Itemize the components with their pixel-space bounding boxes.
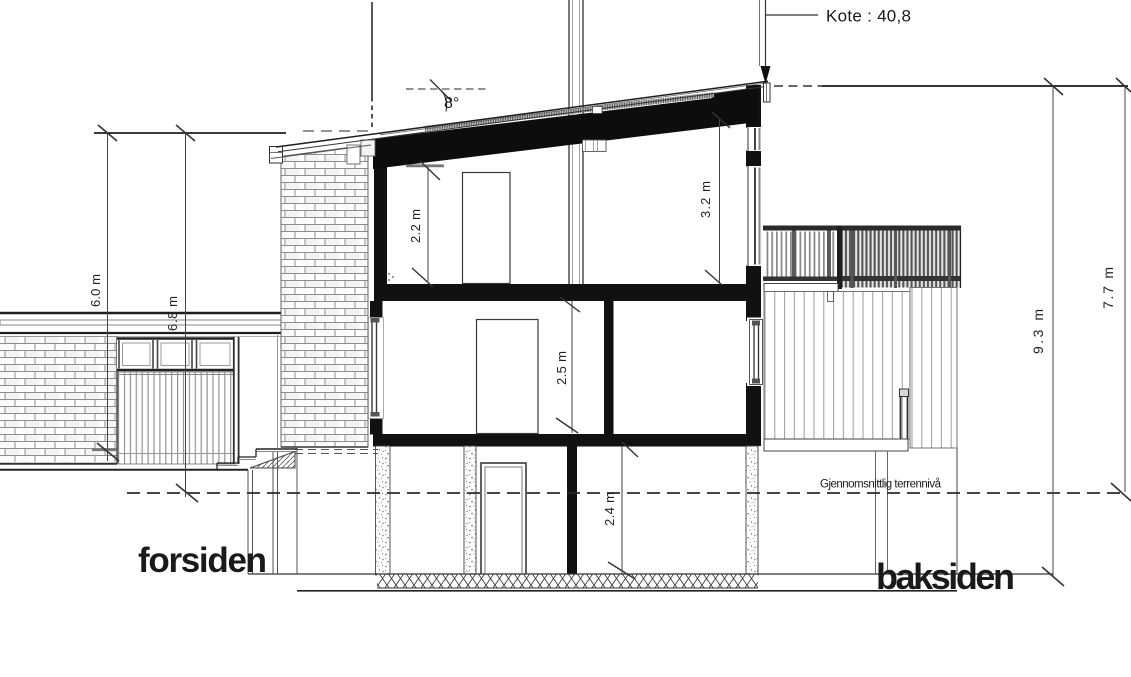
svg-text:Kote : 40,8: Kote : 40,8	[826, 7, 911, 26]
svg-text:2.2 m: 2.2 m	[408, 209, 423, 243]
svg-text:3.2 m: 3.2 m	[698, 181, 713, 218]
svg-text:7.7 m: 7.7 m	[1100, 267, 1116, 309]
svg-text:9.3 m: 9.3 m	[1030, 309, 1046, 354]
svg-text:6.0 m: 6.0 m	[88, 274, 103, 307]
svg-text:baksiden: baksiden	[876, 556, 1015, 597]
svg-text:6.8 m: 6.8 m	[165, 296, 180, 331]
svg-text:forsiden: forsiden	[138, 541, 267, 580]
svg-text:8°: 8°	[444, 95, 459, 112]
svg-text:2.5 m: 2.5 m	[554, 351, 569, 385]
svg-text:Gjennomsnittlig terrennivå: Gjennomsnittlig terrennivå	[820, 479, 942, 491]
svg-text:2.4 m: 2.4 m	[602, 492, 617, 526]
